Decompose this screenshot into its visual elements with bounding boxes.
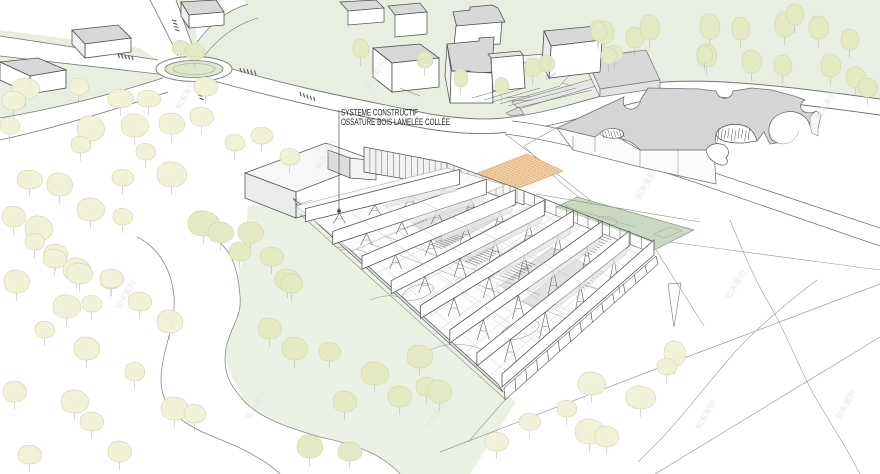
svg-text:OSSATURE BOIS LAMELÉE COLLÉE: OSSATURE BOIS LAMELÉE COLLÉE — [341, 117, 450, 127]
svg-text:知末案例: 知末案例 — [693, 398, 718, 431]
svg-text:知末案例: 知末案例 — [173, 78, 198, 111]
svg-text:知末案例: 知末案例 — [833, 388, 858, 421]
svg-text:知末案例: 知末案例 — [723, 268, 748, 301]
svg-text:知末案例: 知末案例 — [633, 168, 658, 201]
